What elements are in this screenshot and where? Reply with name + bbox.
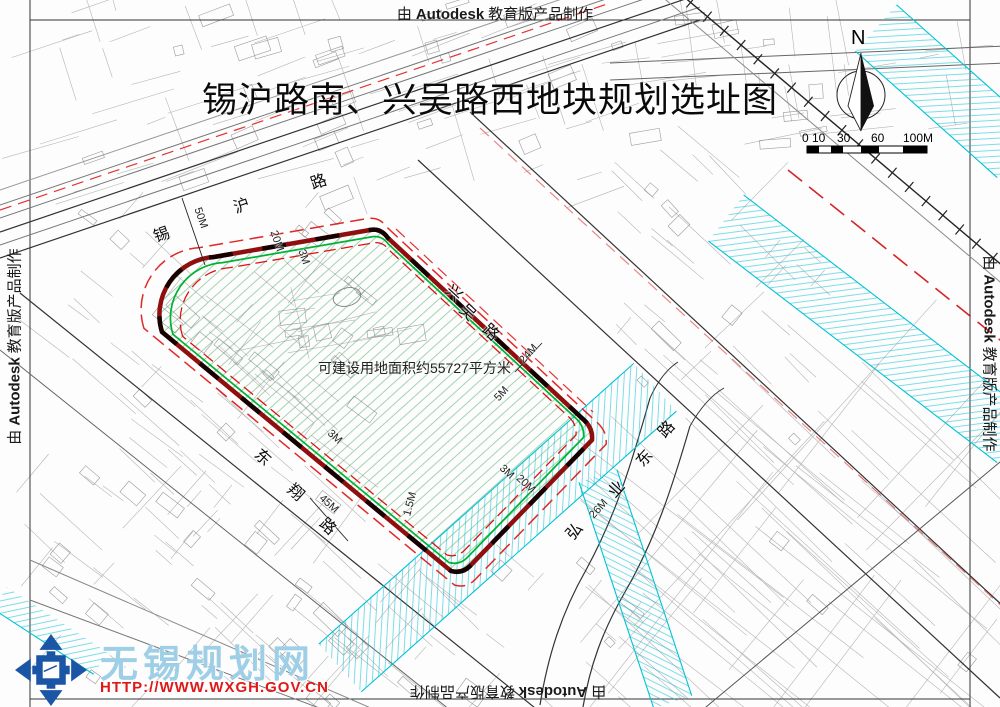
wuxi-planning-emblem — [8, 634, 94, 706]
watermark-text: 教育版产品制作 — [488, 6, 593, 23]
watermark-text: 由 — [397, 6, 412, 23]
watermark-brand: Autodesk — [416, 6, 484, 23]
watermark-text: 由 — [591, 683, 606, 700]
footer-logo — [8, 634, 94, 707]
scale-tick: 60 — [871, 131, 884, 145]
watermark-text: 由 — [981, 255, 998, 270]
scale-tick: 10 — [812, 131, 825, 145]
map-title: 锡沪路南、兴吴路西地块规划选址图 — [202, 72, 778, 123]
watermark-left: 由Autodesk教育版产品制作 — [4, 235, 25, 459]
watermark-right: 由Autodesk教育版产品制作 — [980, 242, 1000, 466]
planning-map-canvas: 锡沪路南、兴吴路西地块规划选址图 由Autodesk教育版产品制作 由Autod… — [0, 0, 1000, 707]
watermark-bottom: 由Autodesk教育版产品制作 — [396, 682, 620, 703]
scale-tick: 100M — [903, 131, 933, 145]
watermark-text: 教育版产品制作 — [981, 347, 998, 452]
footer-site-url: HTTP://WWW.WXGH.GOV.CN — [100, 679, 329, 696]
watermark-text: 教育版产品制作 — [410, 683, 515, 700]
watermark-text: 教育版产品制作 — [7, 248, 24, 353]
watermark-brand: Autodesk — [519, 683, 587, 700]
watermark-brand: Autodesk — [7, 357, 24, 425]
scale-tick: 0 — [802, 131, 809, 145]
north-label: N — [851, 27, 865, 50]
buildable-area-note: 可建设用地面积约55727平方米 — [318, 358, 511, 378]
watermark-top: 由Autodesk教育版产品制作 — [383, 3, 607, 24]
watermark-brand: Autodesk — [981, 274, 998, 342]
watermark-text: 由 — [7, 430, 24, 445]
scale-tick: 30 — [837, 131, 850, 145]
scale-bar — [807, 146, 927, 153]
